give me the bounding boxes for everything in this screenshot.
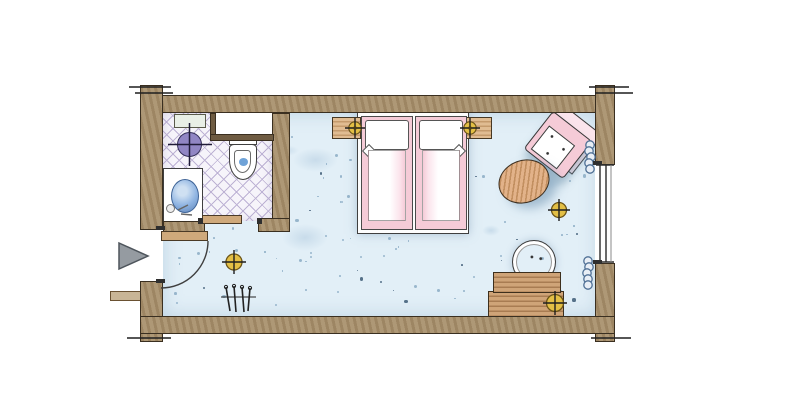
- carpet-speck: [276, 258, 278, 260]
- carpet-speck: [310, 256, 312, 258]
- carpet-speck: [360, 277, 363, 280]
- carpet-speck: [437, 289, 440, 292]
- toilet-water: [239, 158, 248, 166]
- carpet-speck: [454, 298, 455, 299]
- carpet-speck: [473, 276, 475, 278]
- carpet-wash-blotch: [293, 148, 338, 172]
- carpet-speck: [357, 270, 358, 271]
- carpet-speck: [305, 261, 306, 262]
- carpet-speck: [347, 195, 350, 198]
- carpet-speck: [572, 298, 575, 301]
- carpet-speck: [573, 225, 574, 226]
- carpet-speck: [569, 180, 571, 182]
- carpet-speck: [398, 246, 399, 247]
- floor-plan-canvas: [0, 0, 800, 400]
- carpet-speck: [291, 136, 293, 138]
- carpet-speck: [380, 281, 382, 283]
- carpet-speck: [317, 196, 319, 198]
- nightstand-left: [332, 117, 361, 139]
- bathroom-ceiling-light: [177, 132, 202, 157]
- carpet-speck: [463, 290, 465, 292]
- bathroom-door-leaf: [202, 215, 242, 224]
- wall-right-upper: [595, 85, 615, 165]
- carpet-speck: [275, 304, 277, 306]
- carpet-speck: [235, 249, 238, 252]
- exterior-wall-stub: [110, 291, 143, 301]
- washbasin: [171, 179, 199, 213]
- wall-left-upper: [140, 85, 163, 230]
- carpet-speck: [282, 270, 283, 271]
- carpet-speck: [393, 290, 394, 291]
- soap-dish: [166, 204, 175, 213]
- carpet-speck: [323, 177, 325, 179]
- carpet-speck: [350, 238, 351, 239]
- carpet-speck: [209, 251, 211, 253]
- carpet-speck: [395, 248, 397, 250]
- carpet-speck: [176, 302, 178, 304]
- carpet-speck: [232, 256, 235, 259]
- carpet-speck: [576, 233, 578, 235]
- niche-wall-bottom: [210, 134, 274, 141]
- bathroom-wall-bottom-pier: [258, 218, 290, 232]
- bathroom-wall-right: [272, 113, 290, 232]
- carpet-speck: [404, 300, 407, 303]
- carpet-speck: [337, 291, 339, 293]
- carpet-speck: [461, 264, 463, 266]
- carpet-speck: [325, 235, 327, 237]
- carpet-speck: [309, 210, 310, 211]
- carpet-speck: [232, 227, 235, 230]
- carpet-speck: [414, 285, 417, 288]
- carpet-speck: [178, 257, 180, 259]
- desk-upper-tier: [493, 272, 561, 293]
- carpet-speck: [583, 174, 586, 177]
- carpet-speck: [197, 252, 200, 255]
- entry-arrow-icon: [119, 243, 148, 269]
- carpet-speck: [349, 159, 352, 162]
- carpet-speck: [264, 251, 265, 252]
- carpet-speck: [335, 154, 338, 157]
- carpet-speck: [342, 239, 344, 241]
- carpet-speck: [388, 237, 391, 240]
- carpet-speck: [305, 289, 307, 291]
- desk-lower-tier: [488, 291, 564, 317]
- carpet-speck: [475, 176, 477, 178]
- carpet-speck: [500, 255, 502, 257]
- carpet-speck: [310, 252, 312, 254]
- entry-door-leaf: [161, 231, 208, 241]
- window-opening: [595, 164, 615, 264]
- wall-top: [140, 95, 615, 113]
- carpet-speck: [383, 255, 385, 257]
- carpet-speck: [299, 259, 302, 262]
- carpet-speck: [589, 284, 591, 286]
- wall-bottom: [140, 316, 615, 334]
- carpet-speck: [516, 239, 518, 241]
- mattress-left: [361, 116, 413, 230]
- carpet-wash-blotch: [482, 225, 500, 236]
- carpet-speck: [341, 201, 343, 203]
- carpet-speck: [504, 221, 506, 223]
- carpet-speck: [561, 234, 563, 236]
- carpet-speck: [320, 172, 323, 175]
- carpet-speck: [222, 295, 225, 298]
- bathroom-shelf: [174, 114, 206, 128]
- duvet-right: [422, 150, 460, 221]
- carpet-speck: [339, 275, 341, 277]
- carpet-speck: [174, 292, 177, 295]
- duvet-left: [368, 150, 406, 221]
- mattress-right: [415, 116, 467, 230]
- carpet-speck: [340, 175, 342, 177]
- pillow-left: [365, 120, 409, 150]
- carpet-speck: [295, 219, 298, 222]
- carpet-speck: [501, 260, 502, 261]
- carpet-speck: [203, 287, 205, 289]
- carpet-speck: [179, 263, 181, 265]
- carpet-speck: [213, 237, 215, 239]
- carpet-speck: [360, 256, 362, 258]
- carpet-speck: [566, 234, 567, 235]
- wall-niche: [215, 113, 272, 134]
- carpet-speck: [482, 175, 485, 178]
- pillow-right: [419, 120, 463, 150]
- carpet-speck: [408, 240, 410, 242]
